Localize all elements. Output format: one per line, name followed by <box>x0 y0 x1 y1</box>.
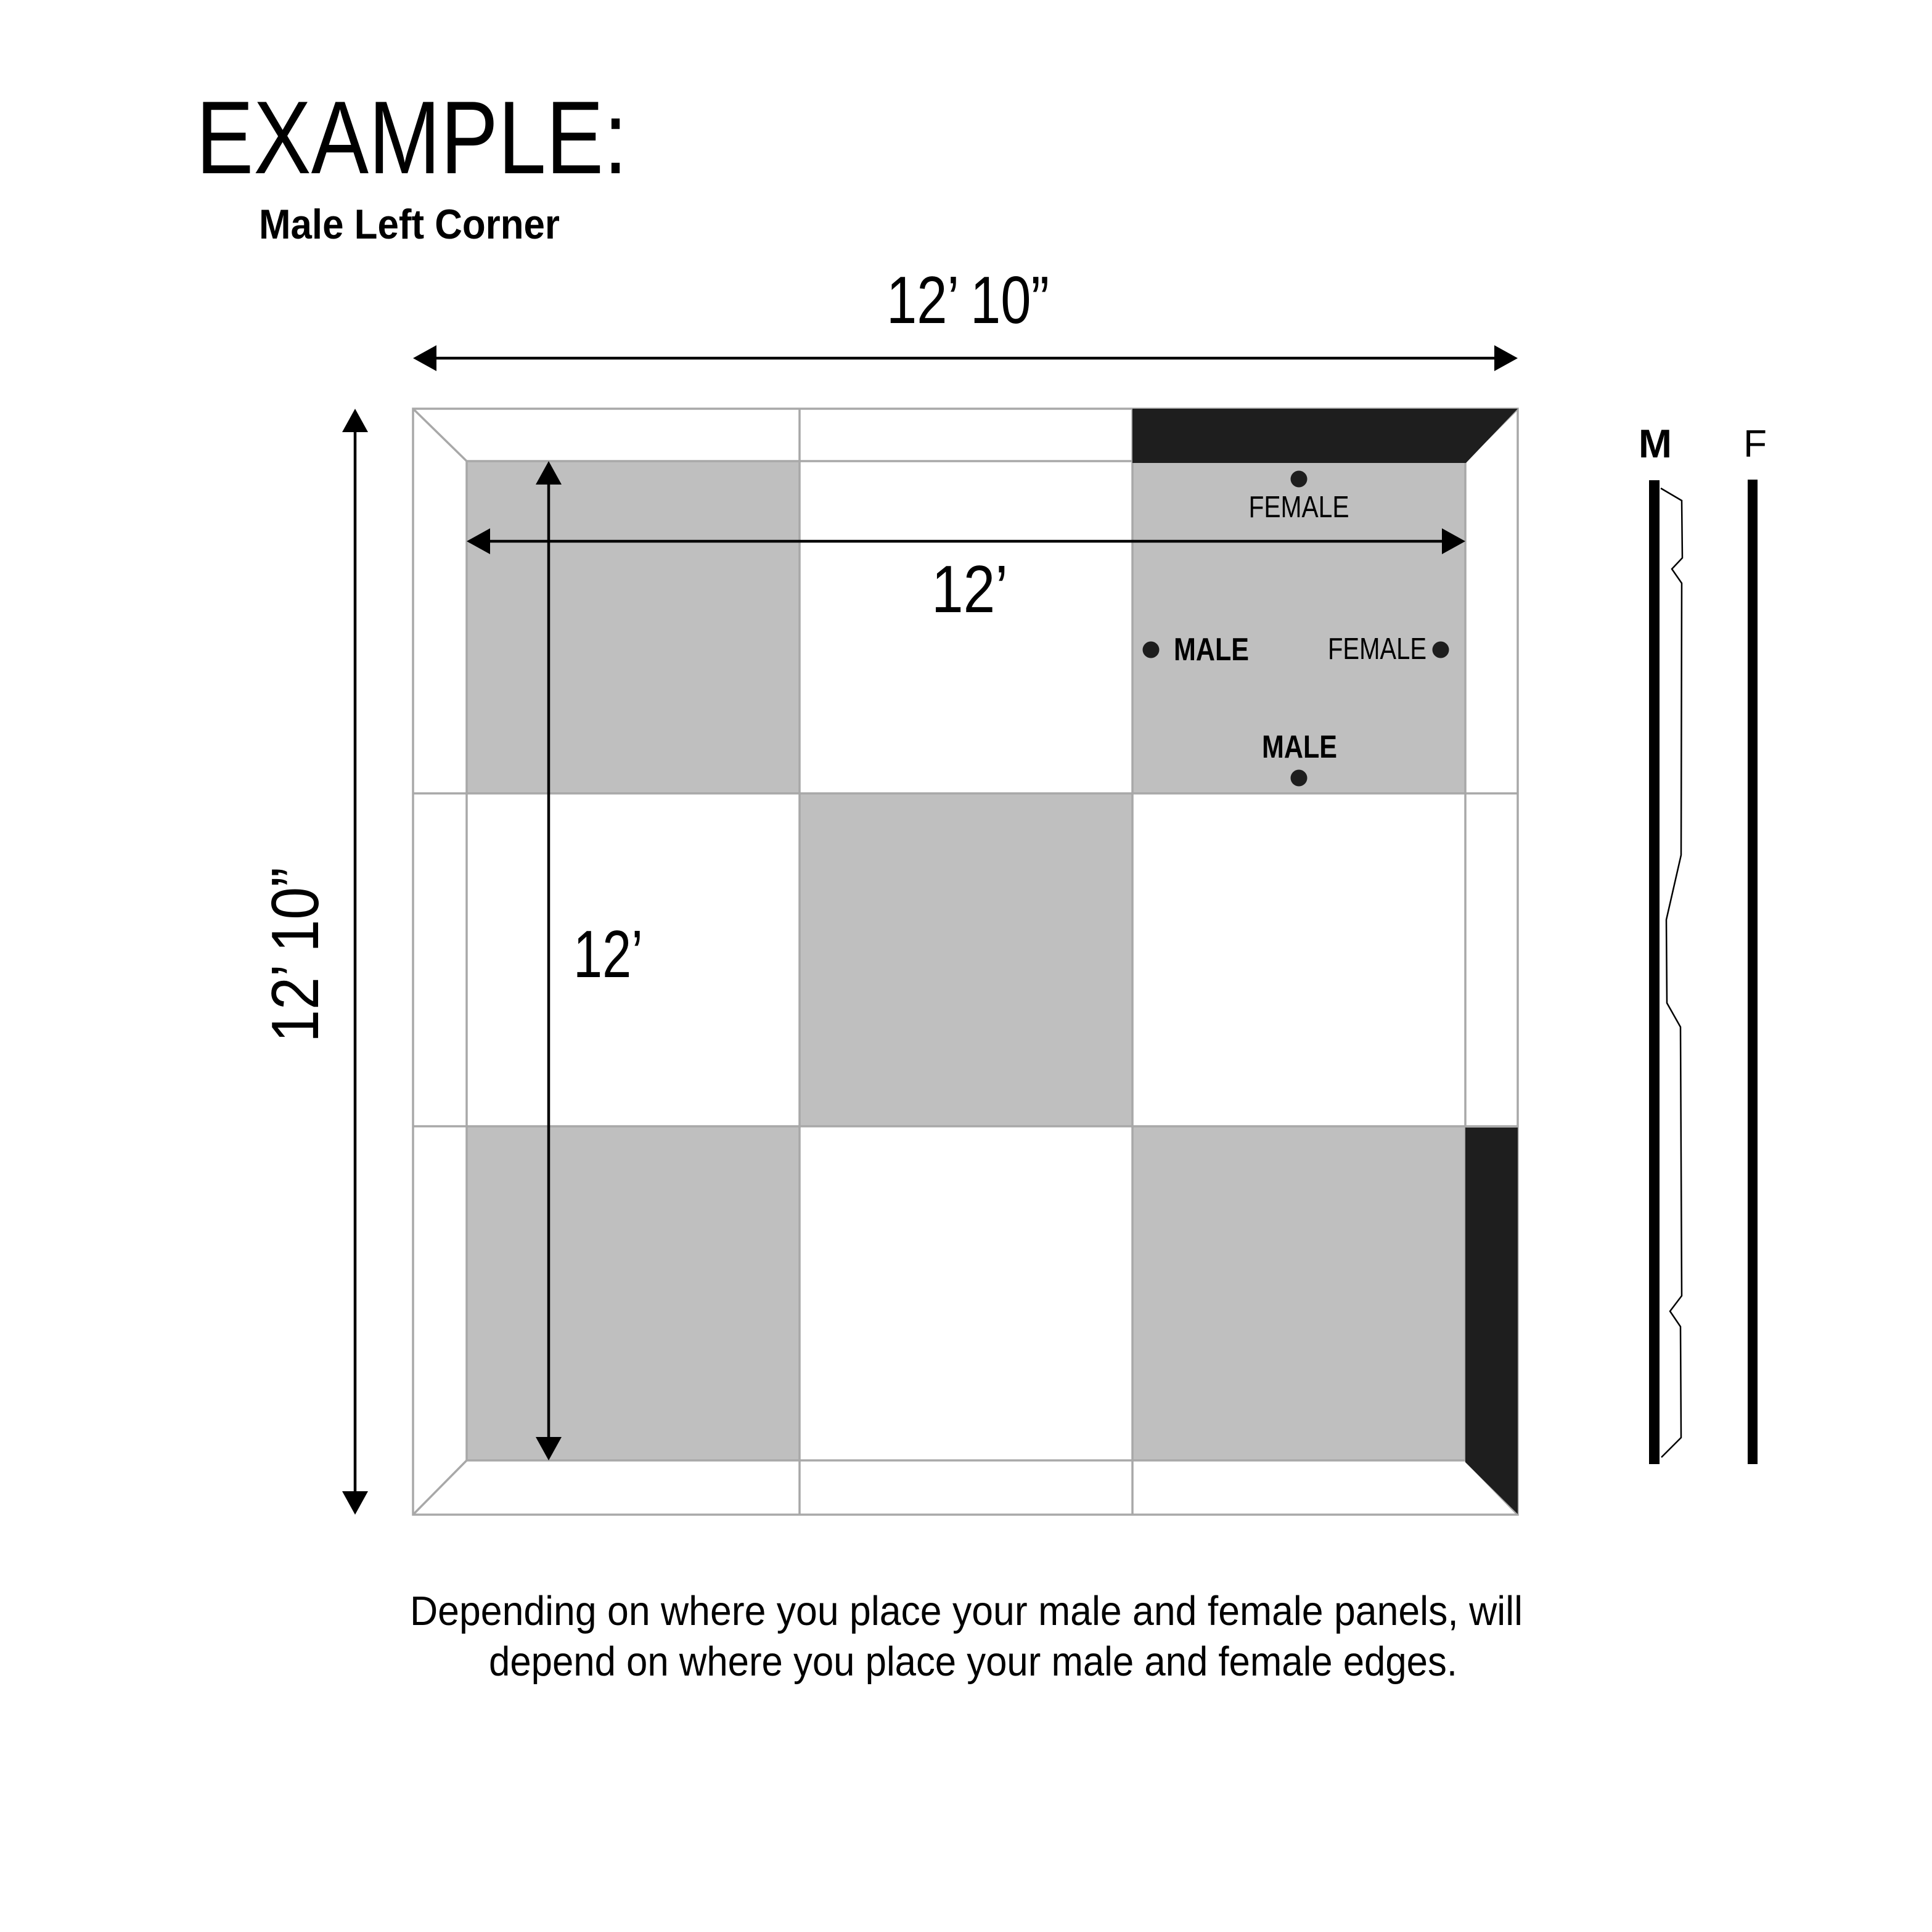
svg-text:Male Left Corner: Male Left Corner <box>259 201 560 248</box>
svg-text:FEMALE: FEMALE <box>1328 632 1426 666</box>
svg-text:MALE: MALE <box>1262 729 1337 765</box>
svg-text:FEMALE: FEMALE <box>1249 491 1349 524</box>
svg-text:12’ 10”: 12’ 10” <box>886 263 1049 338</box>
svg-text:depend on where you place your: depend on where you place your male and … <box>489 1639 1457 1685</box>
svg-text:12’ 10”: 12’ 10” <box>258 867 333 1042</box>
svg-text:F: F <box>1743 423 1767 465</box>
svg-text:M: M <box>1639 421 1672 466</box>
svg-text:Depending on where you place y: Depending on where you place your male a… <box>410 1588 1523 1634</box>
svg-text:12’: 12’ <box>573 917 643 992</box>
svg-text:MALE: MALE <box>1174 632 1249 668</box>
svg-text:12’: 12’ <box>931 552 1008 627</box>
svg-text:EXAMPLE:: EXAMPLE: <box>196 80 628 195</box>
